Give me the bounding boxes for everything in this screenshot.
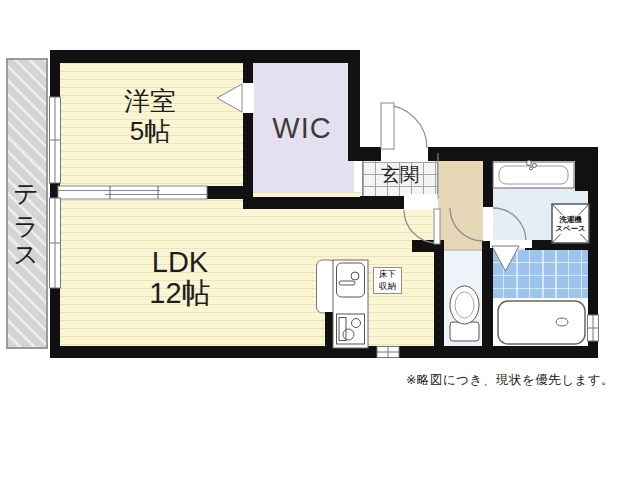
wall-segment (50, 286, 60, 348)
wall-segment (50, 183, 60, 199)
floorplan-canvas: テラス 洋室 5帖 WIC LDK 12帖 玄関 床下 収納 洗濯機 スペース … (0, 0, 640, 480)
wall-segment (50, 60, 60, 100)
note-text: ※略図につき、現状を優先します。 (406, 372, 614, 389)
underfloor-storage-line1: 床下 (379, 269, 396, 281)
wall-segment (243, 197, 360, 209)
washing-machine-line1: 洗濯機 (558, 215, 583, 225)
wall-segment (482, 240, 493, 350)
western-room-name: 洋室 (80, 86, 220, 116)
wall-segment (360, 196, 407, 209)
ldk-label: LDK 12帖 (105, 247, 255, 309)
washing-machine-label: 洗濯機 スペース (552, 205, 589, 243)
ldk-name: LDK (105, 247, 255, 278)
wall-segment (243, 60, 253, 85)
wall-segment (588, 161, 598, 351)
genkan-label: 玄関 (362, 162, 438, 188)
wic-label: WIC (250, 112, 354, 145)
western-room-label: 洋室 5帖 (80, 86, 220, 146)
wall-segment (348, 147, 382, 161)
room-toilet (440, 250, 484, 348)
wall-segment (348, 60, 360, 161)
wall-segment (427, 147, 598, 161)
wall-segment (50, 50, 360, 63)
underfloor-storage-box: 床下 収納 (373, 267, 402, 294)
wall-segment (50, 346, 598, 358)
room-hallway (438, 158, 484, 252)
room-bathroom-tile (490, 244, 590, 302)
western-room-size: 5帖 (80, 116, 220, 146)
terrace-label: テラス (6, 150, 48, 280)
wall-segment (483, 161, 493, 208)
ldk-size: 12帖 (105, 278, 255, 309)
room-bathroom-tub-area (490, 298, 590, 348)
washing-machine-line2: スペース (554, 224, 587, 234)
wall-segment (434, 240, 444, 350)
underfloor-storage-line2: 収納 (379, 281, 396, 293)
